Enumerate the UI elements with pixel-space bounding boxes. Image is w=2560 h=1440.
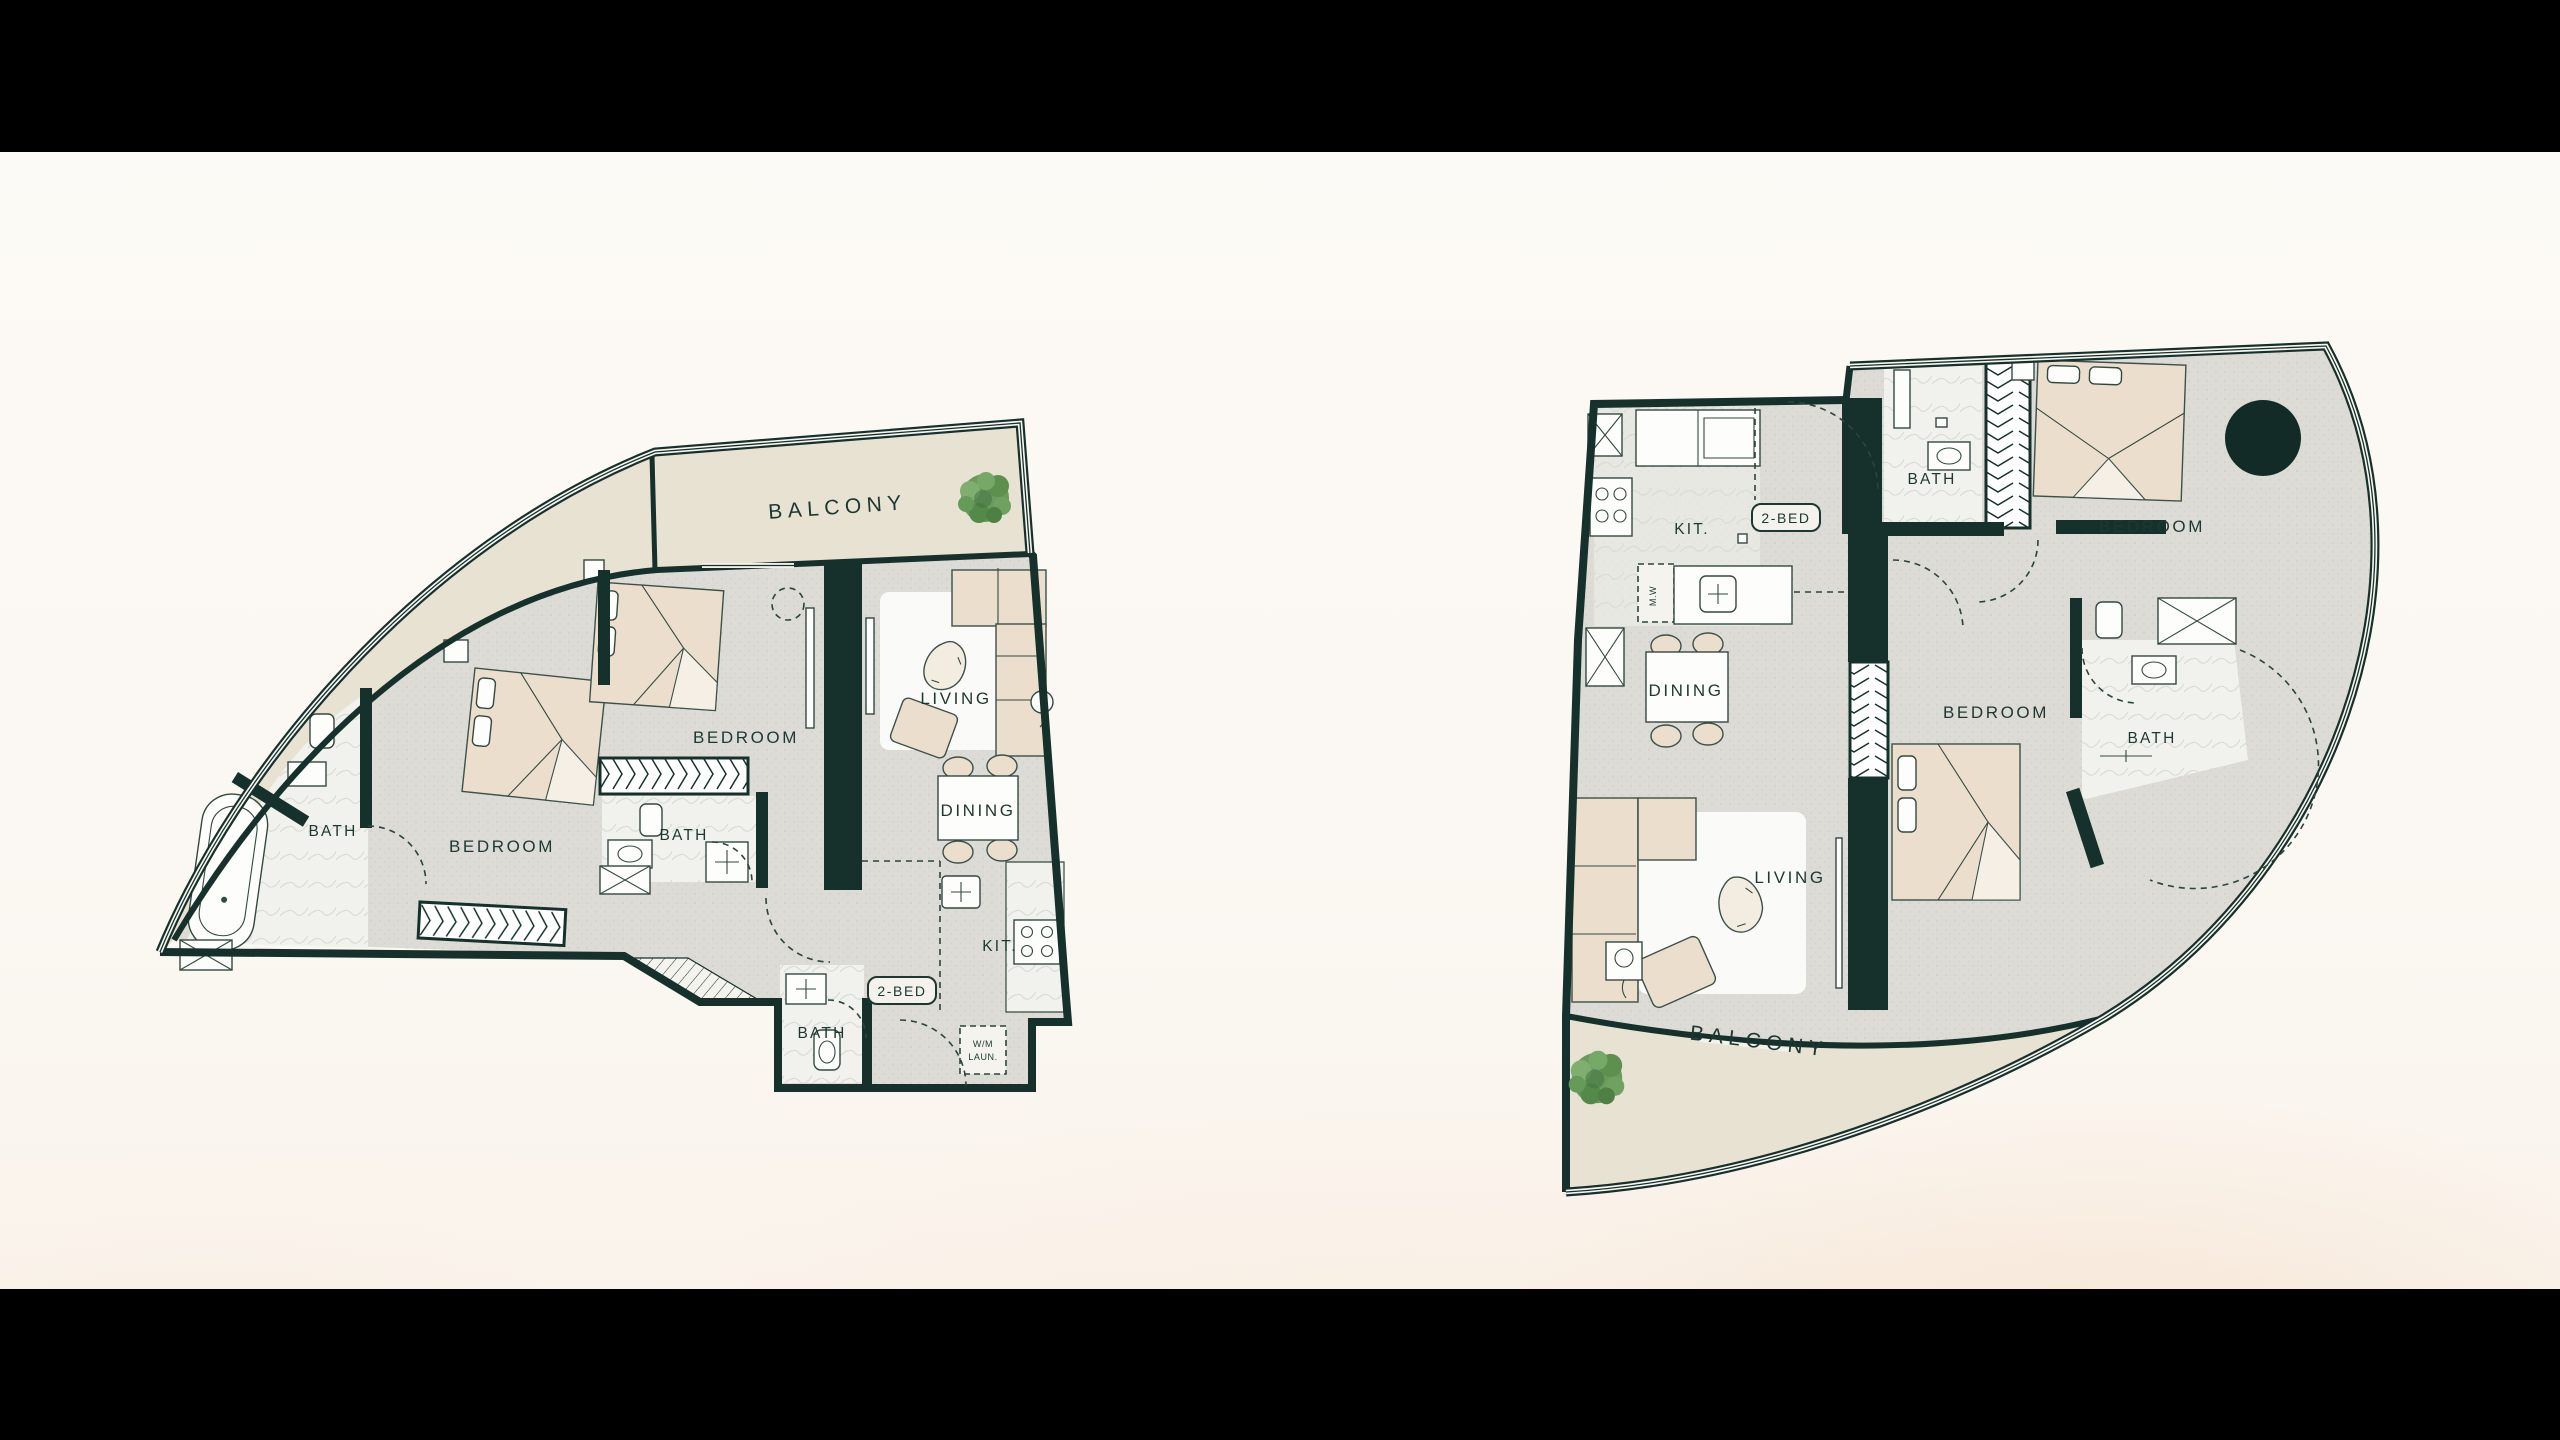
- shower-panel: [1894, 370, 1910, 428]
- room-label-bedroom-second-left: BEDROOM: [693, 728, 799, 747]
- bed-primary-left: [462, 668, 606, 805]
- wardrobe-left-2: [600, 758, 748, 794]
- wall: [862, 998, 872, 1088]
- wall: [1842, 398, 1882, 534]
- room-label-kitchen-right: KIT.: [1674, 521, 1710, 538]
- tv-panel: [1836, 838, 1842, 988]
- unit-badge-left-text: 2-BED: [877, 983, 926, 999]
- wardrobe-right-1: [1986, 362, 2030, 528]
- bed-primary-right: [2033, 360, 2186, 501]
- label-washer: W/M: [973, 1039, 993, 1049]
- room-label-bedroom-primary-left: BEDROOM: [449, 837, 555, 856]
- wall: [1872, 522, 2004, 536]
- vanity: [608, 840, 652, 868]
- room-label-bath-entry: BATH: [798, 1025, 847, 1042]
- chair: [1693, 723, 1723, 745]
- chair: [943, 841, 973, 863]
- floorplans-canvas: 2-BED BALCONY BATH BEDROOM BATH BEDROOM …: [0, 0, 2560, 1440]
- chair: [1651, 725, 1681, 747]
- room-label-living-left: LIVING: [920, 689, 991, 708]
- unit-badge-left: 2-BED: [868, 977, 936, 1004]
- fixture: [1936, 418, 1947, 427]
- sofa-chaise: [1638, 798, 1696, 860]
- vanity: [1928, 442, 1970, 470]
- stove: [1590, 478, 1632, 536]
- washer-box: [960, 1026, 1006, 1074]
- vanity: [2132, 656, 2176, 684]
- room-label-bath-middle: BATH: [660, 827, 709, 844]
- floorplan-left: 2-BED BALCONY BATH BEDROOM BATH BEDROOM …: [160, 423, 1068, 1088]
- tv-panel: [806, 608, 814, 728]
- stove: [1014, 920, 1060, 964]
- column-icon: [2225, 400, 2301, 476]
- room-label-bath-corner: BATH: [309, 823, 358, 840]
- room-label-bath-right: BATH: [2128, 730, 2177, 747]
- wall: [1848, 778, 1888, 1010]
- bed-second-right: [1892, 744, 2020, 900]
- letterbox-top-bar: [0, 0, 2560, 152]
- room-label-dining-right: DINING: [1648, 681, 1723, 700]
- tv-console: [866, 618, 874, 714]
- floorplan-stage: 2-BED BALCONY BATH BEDROOM BATH BEDROOM …: [0, 0, 2560, 1440]
- wall: [824, 564, 862, 890]
- room-label-living-right: LIVING: [1754, 868, 1825, 887]
- wardrobe-left-1: [418, 902, 566, 946]
- wall: [2070, 598, 2082, 718]
- wall: [1848, 530, 1888, 662]
- door-stop: [1738, 534, 1747, 543]
- chair: [987, 755, 1017, 777]
- wardrobe-right-2: [1850, 662, 1888, 778]
- letterbox-bottom-bar: [0, 1289, 2560, 1440]
- toilet: [2096, 602, 2122, 638]
- label-laundry: LAUN.: [968, 1052, 998, 1062]
- room-label-bedroom-second-right: BEDROOM: [1943, 703, 2049, 722]
- chair: [987, 839, 1017, 861]
- wall: [756, 792, 768, 888]
- unit-badge-right-text: 2-BED: [1761, 510, 1810, 526]
- wall: [598, 570, 610, 685]
- unit-badge-right: 2-BED: [1752, 504, 1820, 531]
- room-label-bath-top: BATH: [1908, 471, 1957, 488]
- room-label-bedroom-primary-right: BEDROOM: [2099, 517, 2205, 536]
- room-label-kitchen-left: KIT.: [982, 938, 1018, 955]
- room-label-dining-left: DINING: [940, 801, 1015, 820]
- label-microwave: M.W: [1648, 586, 1658, 606]
- floor-lamp: [1606, 942, 1642, 980]
- floorplan-right: 2-BED KIT. M.W BATH BEDROOM DINING BEDRO…: [1566, 346, 2375, 1192]
